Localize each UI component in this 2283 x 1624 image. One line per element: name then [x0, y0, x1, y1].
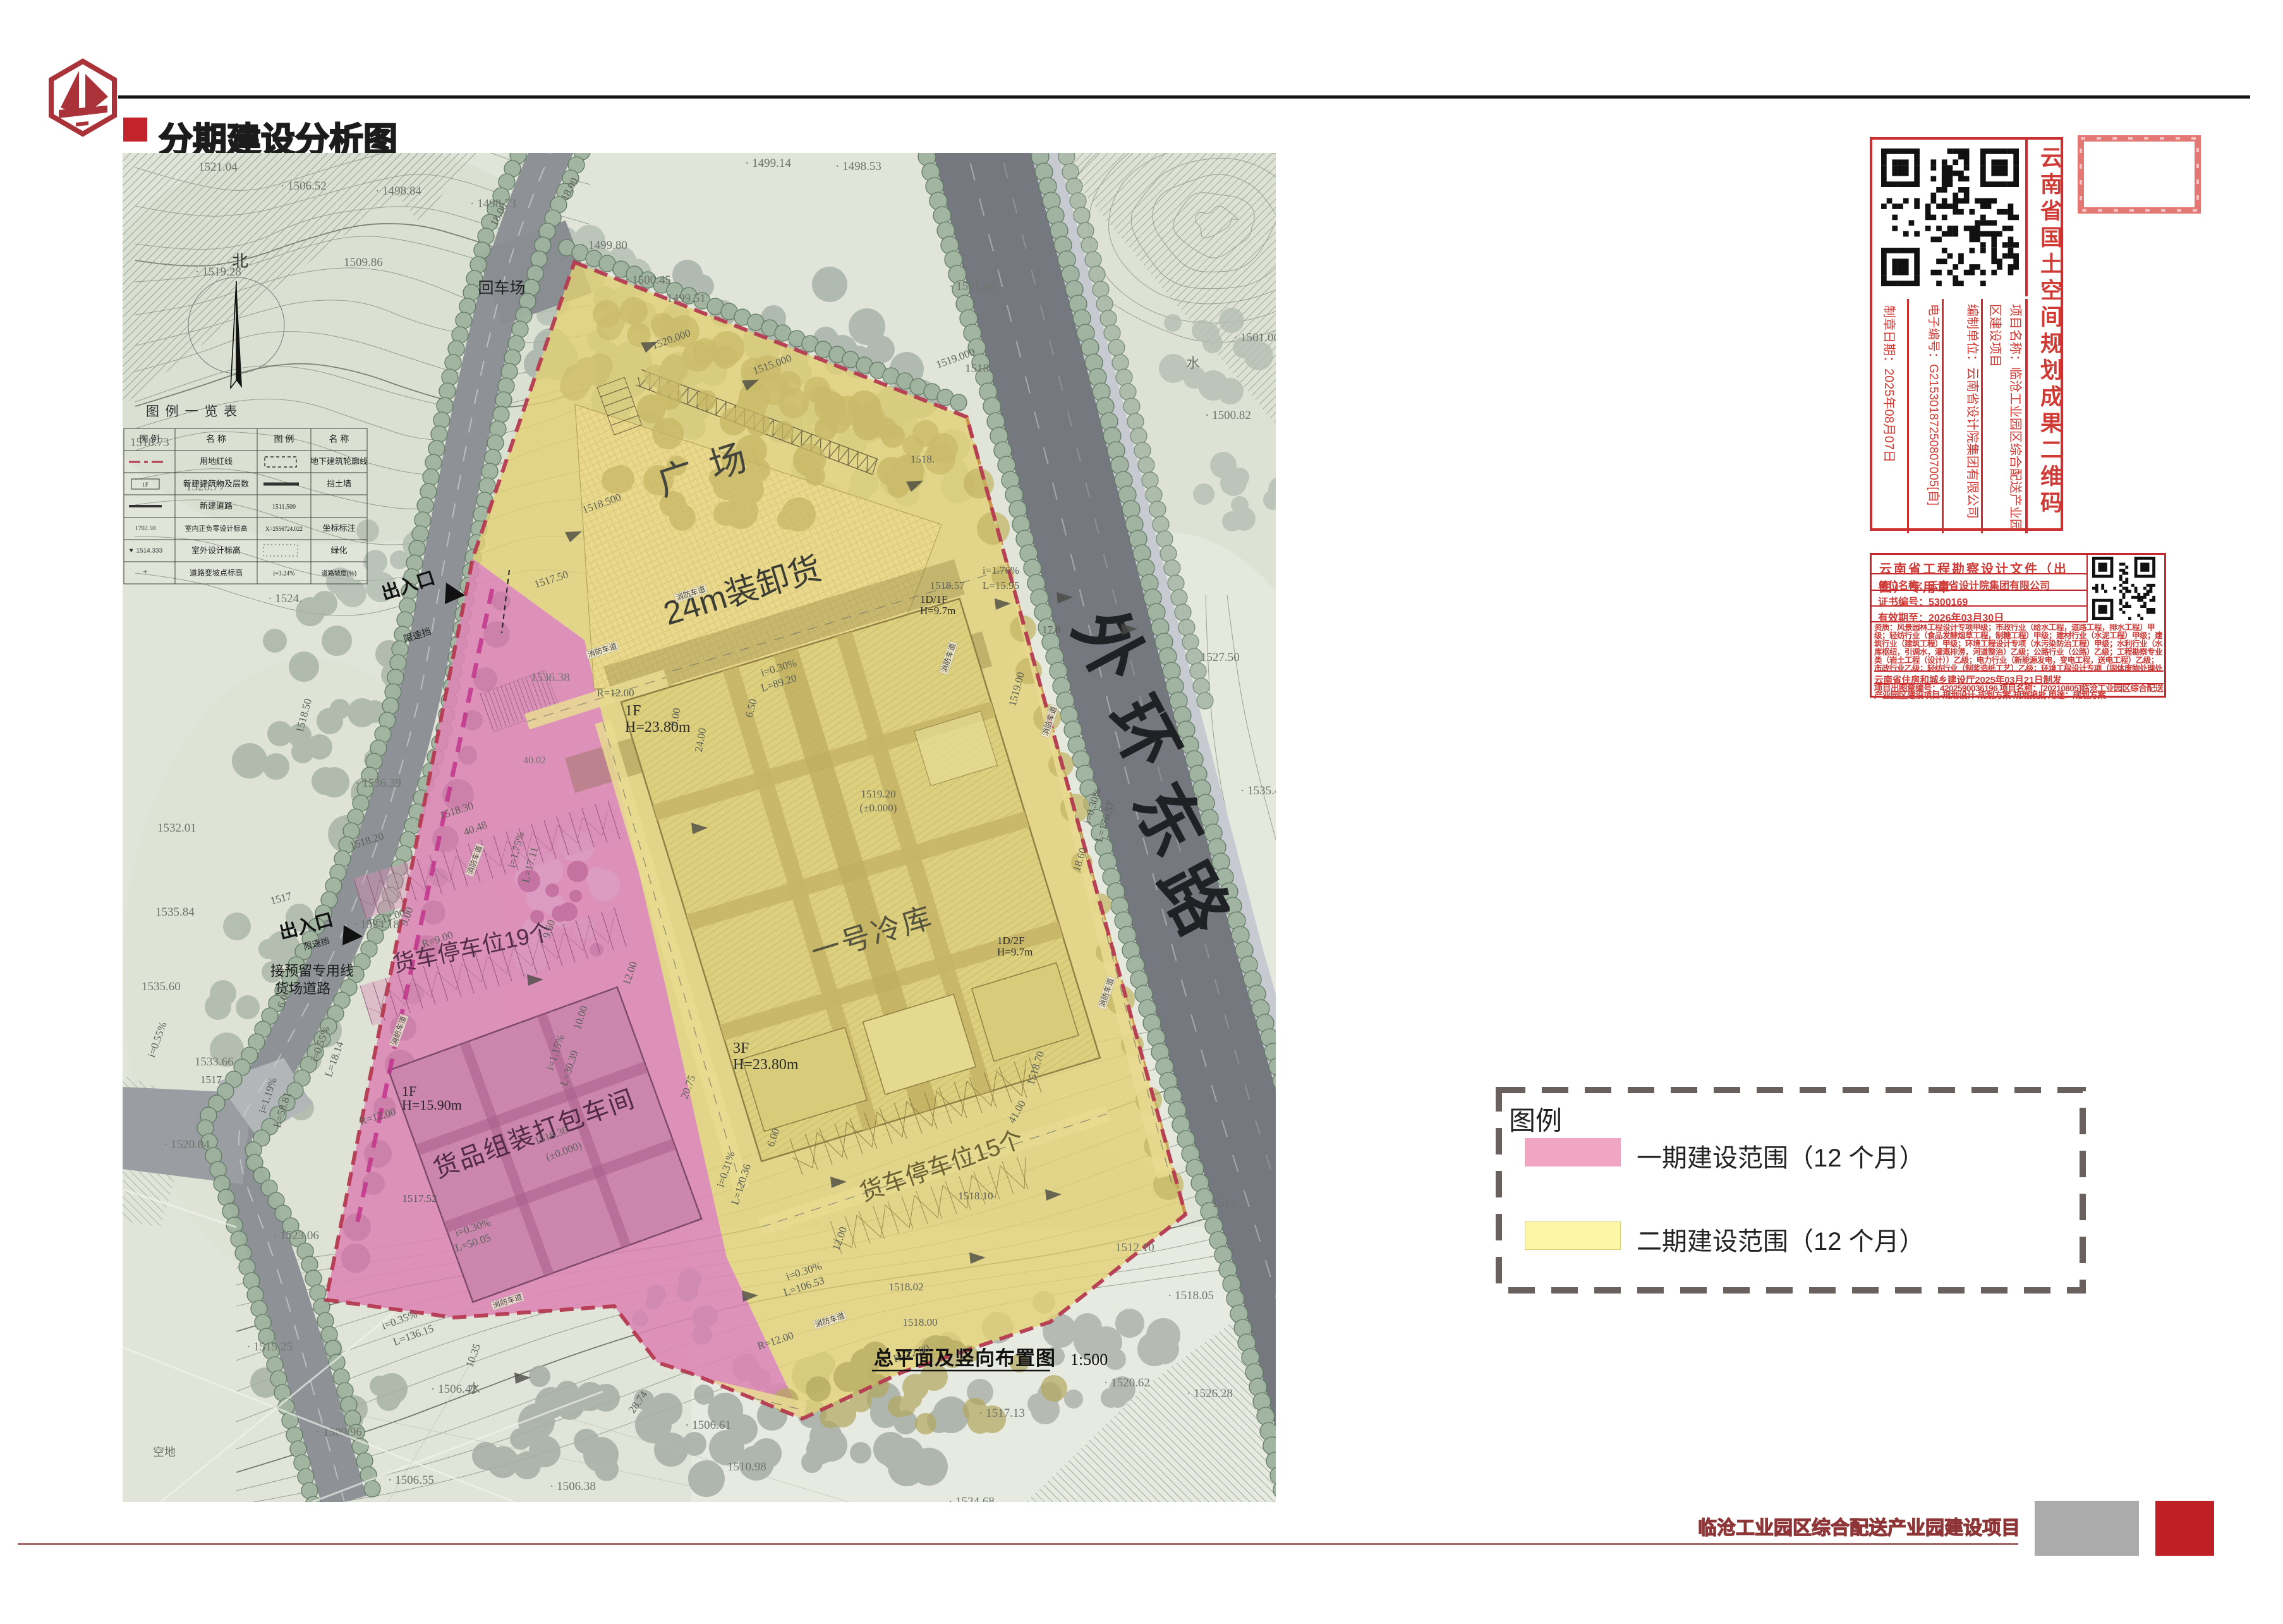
svg-text:1519.20: 1519.20 [861, 788, 895, 800]
svg-text:· 1498.53: · 1498.53 [835, 160, 881, 173]
svg-text:1518.10: 1518.10 [958, 1190, 993, 1202]
svg-text:新建建筑物及层数: 新建建筑物及层数 [183, 479, 249, 488]
svg-text:1518.00: 1518.00 [902, 1316, 937, 1328]
svg-text:名 称: 名 称 [206, 434, 226, 444]
svg-text:1533.66: 1533.66 [195, 1055, 234, 1069]
svg-text:· 1499.80: · 1499.80 [581, 239, 627, 252]
svg-text:1518.02: 1518.02 [888, 1281, 923, 1293]
svg-text:· 1499.14: · 1499.14 [745, 157, 791, 170]
svg-text:· 1517.13: · 1517.13 [979, 1407, 1025, 1420]
svg-text:1511.500: 1511.500 [272, 504, 296, 511]
svg-text:H=9.7m: H=9.7m [997, 946, 1032, 958]
svg-text:· 1535.47: · 1535.47 [1240, 784, 1276, 797]
svg-text:道路变坡点标高: 道路变坡点标高 [190, 567, 243, 577]
svg-text:H=23.80m: H=23.80m [625, 719, 691, 736]
svg-text:· 1498.73: · 1498.73 [470, 197, 516, 210]
svg-text:· 1518.05: · 1518.05 [1168, 1289, 1214, 1302]
svg-text:挡土墙: 挡土墙 [327, 479, 351, 488]
svg-text:· 1499.51: · 1499.51 [660, 292, 706, 305]
svg-text:水: 水 [468, 1381, 480, 1396]
svg-text:1517.52: 1517.52 [402, 1192, 437, 1204]
svg-text:· 1520.62: · 1520.62 [1104, 1376, 1150, 1390]
svg-text:水: 水 [1186, 355, 1200, 371]
svg-text:1527.50: 1527.50 [1201, 651, 1240, 664]
svg-text:R=12.00: R=12.00 [596, 687, 634, 699]
svg-text:▼ 1514.333: ▼ 1514.333 [128, 547, 163, 554]
svg-text:(±0.000): (±0.000) [860, 802, 897, 814]
svg-text:空地: 空地 [153, 1446, 176, 1458]
svg-text:· 1501.49: · 1501.49 [949, 280, 995, 293]
svg-text:i=3.24%: i=3.24% [273, 570, 294, 577]
svg-text:1:500: 1:500 [1070, 1350, 1108, 1369]
svg-text:· 1501.06: · 1501.06 [1233, 331, 1276, 344]
svg-text:· 1524.: · 1524. [268, 592, 302, 605]
svg-text:图 例: 图 例 [274, 434, 294, 444]
svg-text:1509.86: 1509.86 [344, 256, 383, 269]
svg-text:坐标标注: 坐标标注 [322, 523, 355, 533]
svg-text:L=15.95: L=15.95 [983, 579, 1019, 591]
svg-text:1518.: 1518. [911, 453, 935, 465]
svg-text:图 例: 图 例 [140, 434, 160, 444]
svg-text:1D/1F: 1D/1F [920, 593, 947, 605]
svg-text:回车场: 回车场 [478, 279, 525, 297]
svg-text:图 例 一 览 表: 图 例 一 览 表 [146, 404, 238, 419]
svg-text:1702.50: 1702.50 [135, 525, 156, 532]
svg-text:H=9.7m: H=9.7m [920, 605, 955, 617]
svg-text:· 1524.68: · 1524.68 [948, 1495, 995, 1502]
svg-text:3F: 3F [733, 1040, 749, 1057]
svg-text:· 1515.25: · 1515.25 [246, 1340, 293, 1354]
svg-text:1521.04: 1521.04 [198, 161, 238, 174]
svg-text:17.8: 17.8 [1042, 624, 1061, 636]
svg-text:· 1500.82: · 1500.82 [1205, 409, 1251, 422]
svg-text:40.02: 40.02 [523, 755, 546, 766]
svg-text:· 1514.: · 1514. [1205, 1197, 1239, 1210]
svg-text:1F: 1F [625, 703, 641, 719]
svg-text:· 1506.38: · 1506.38 [550, 1480, 596, 1493]
svg-text:· 1523.06: · 1523.06 [273, 1229, 319, 1242]
svg-text:· 1520.04: · 1520.04 [164, 1138, 210, 1151]
svg-text:· 1498.84: · 1498.84 [375, 185, 421, 198]
svg-text:1F: 1F [142, 482, 148, 488]
svg-text:· 1506.55: · 1506.55 [388, 1474, 434, 1487]
svg-text:室内正负零设计标高: 室内正负零设计标高 [185, 524, 248, 533]
svg-text:绿化: 绿化 [330, 545, 347, 555]
svg-text:室外设计标高: 室外设计标高 [191, 545, 241, 555]
svg-text:H=15.90m: H=15.90m [402, 1097, 462, 1113]
svg-text:北: 北 [232, 251, 248, 270]
svg-text:道路坡度(%): 道路坡度(%) [322, 569, 357, 577]
svg-text:1518.: 1518. [965, 362, 992, 375]
svg-text:1517: 1517 [200, 1074, 222, 1086]
svg-text:1532.01: 1532.01 [157, 821, 197, 835]
svg-text:1535.60: 1535.60 [142, 980, 181, 993]
svg-text:地下建筑轮廓线: 地下建筑轮廓线 [310, 457, 368, 466]
svg-text:H=23.80m: H=23.80m [733, 1057, 799, 1073]
svg-text:1D/2F: 1D/2F [997, 935, 1024, 947]
svg-text:X=2556724.022: X=2556724.022 [265, 526, 303, 532]
svg-text:i=1.76%: i=1.76% [983, 564, 1019, 576]
svg-text:+: + [143, 567, 148, 577]
svg-text:· 1536.39: · 1536.39 [355, 777, 401, 790]
svg-text:1512.10: 1512.10 [1115, 1241, 1154, 1254]
svg-text:· 1500.45: · 1500.45 [625, 274, 671, 287]
svg-text:用地红线: 用地红线 [200, 457, 233, 466]
svg-text:· 1506.52: · 1506.52 [281, 179, 327, 193]
svg-text:1518.57: 1518.57 [930, 579, 965, 591]
svg-text:接预留专用线: 接预留专用线 [270, 963, 354, 979]
svg-text:1536.38: 1536.38 [531, 671, 570, 684]
svg-text:1535.84: 1535.84 [155, 906, 195, 919]
svg-text:名 称: 名 称 [329, 434, 349, 444]
svg-text:· 1526.28: · 1526.28 [1187, 1387, 1233, 1400]
svg-text:新建道路: 新建道路 [200, 501, 233, 511]
svg-text:· 1506.61: · 1506.61 [685, 1419, 731, 1432]
